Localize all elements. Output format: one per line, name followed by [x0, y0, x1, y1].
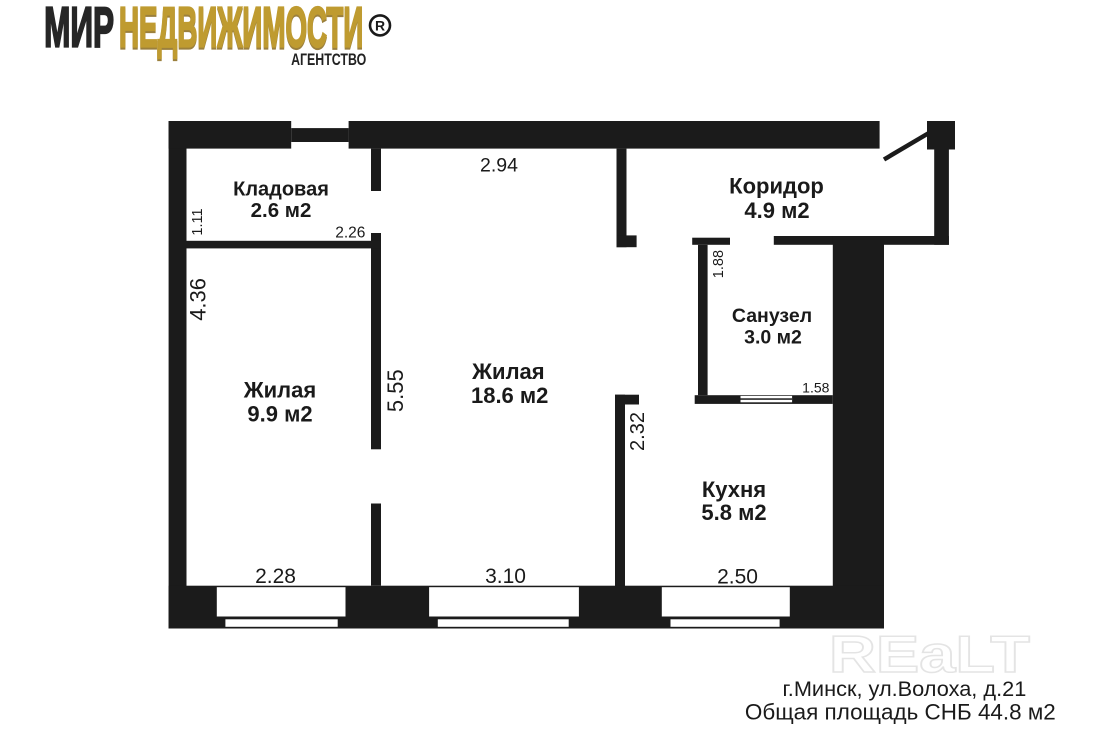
svg-text:9.9 м2: 9.9 м2 [247, 402, 312, 427]
svg-text:Жилая: Жилая [243, 377, 316, 402]
svg-text:г.Минск, ул.Волоха, д.21: г.Минск, ул.Волоха, д.21 [783, 678, 1027, 701]
svg-text:2.26: 2.26 [335, 225, 365, 242]
svg-text:Кладовая: Кладовая [233, 178, 329, 200]
svg-text:4.9 м2: 4.9 м2 [744, 198, 809, 223]
svg-text:2.6 м2: 2.6 м2 [251, 199, 312, 222]
svg-text:5.8 м2: 5.8 м2 [701, 500, 766, 525]
svg-text:Коридор: Коридор [729, 173, 824, 198]
svg-text:1.88: 1.88 [711, 250, 727, 278]
svg-text:1.58: 1.58 [802, 379, 829, 395]
svg-text:МИР: МИР [44, 0, 114, 59]
svg-text:Жилая: Жилая [471, 359, 544, 384]
svg-text:2.50: 2.50 [717, 566, 758, 589]
svg-text:АГЕНТСТВО: АГЕНТСТВО [291, 50, 366, 69]
svg-text:REaLT: REaLT [829, 626, 1030, 684]
svg-text:5.55: 5.55 [383, 369, 408, 412]
svg-text:4.36: 4.36 [186, 278, 211, 321]
svg-text:3.0 м2: 3.0 м2 [744, 327, 802, 349]
svg-text:3.10: 3.10 [485, 565, 526, 588]
svg-text:2.94: 2.94 [480, 155, 518, 177]
svg-text:Общая площадь СНБ 44.8 м2: Общая площадь СНБ 44.8 м2 [745, 700, 1056, 725]
svg-text:Кухня: Кухня [702, 477, 766, 502]
svg-text:18.6 м2: 18.6 м2 [471, 383, 548, 408]
svg-text:2.32: 2.32 [627, 412, 649, 451]
svg-text:R: R [375, 17, 385, 33]
svg-text:1.11: 1.11 [190, 208, 206, 235]
svg-text:Санузел: Санузел [732, 305, 812, 327]
svg-text:2.28: 2.28 [255, 565, 296, 588]
